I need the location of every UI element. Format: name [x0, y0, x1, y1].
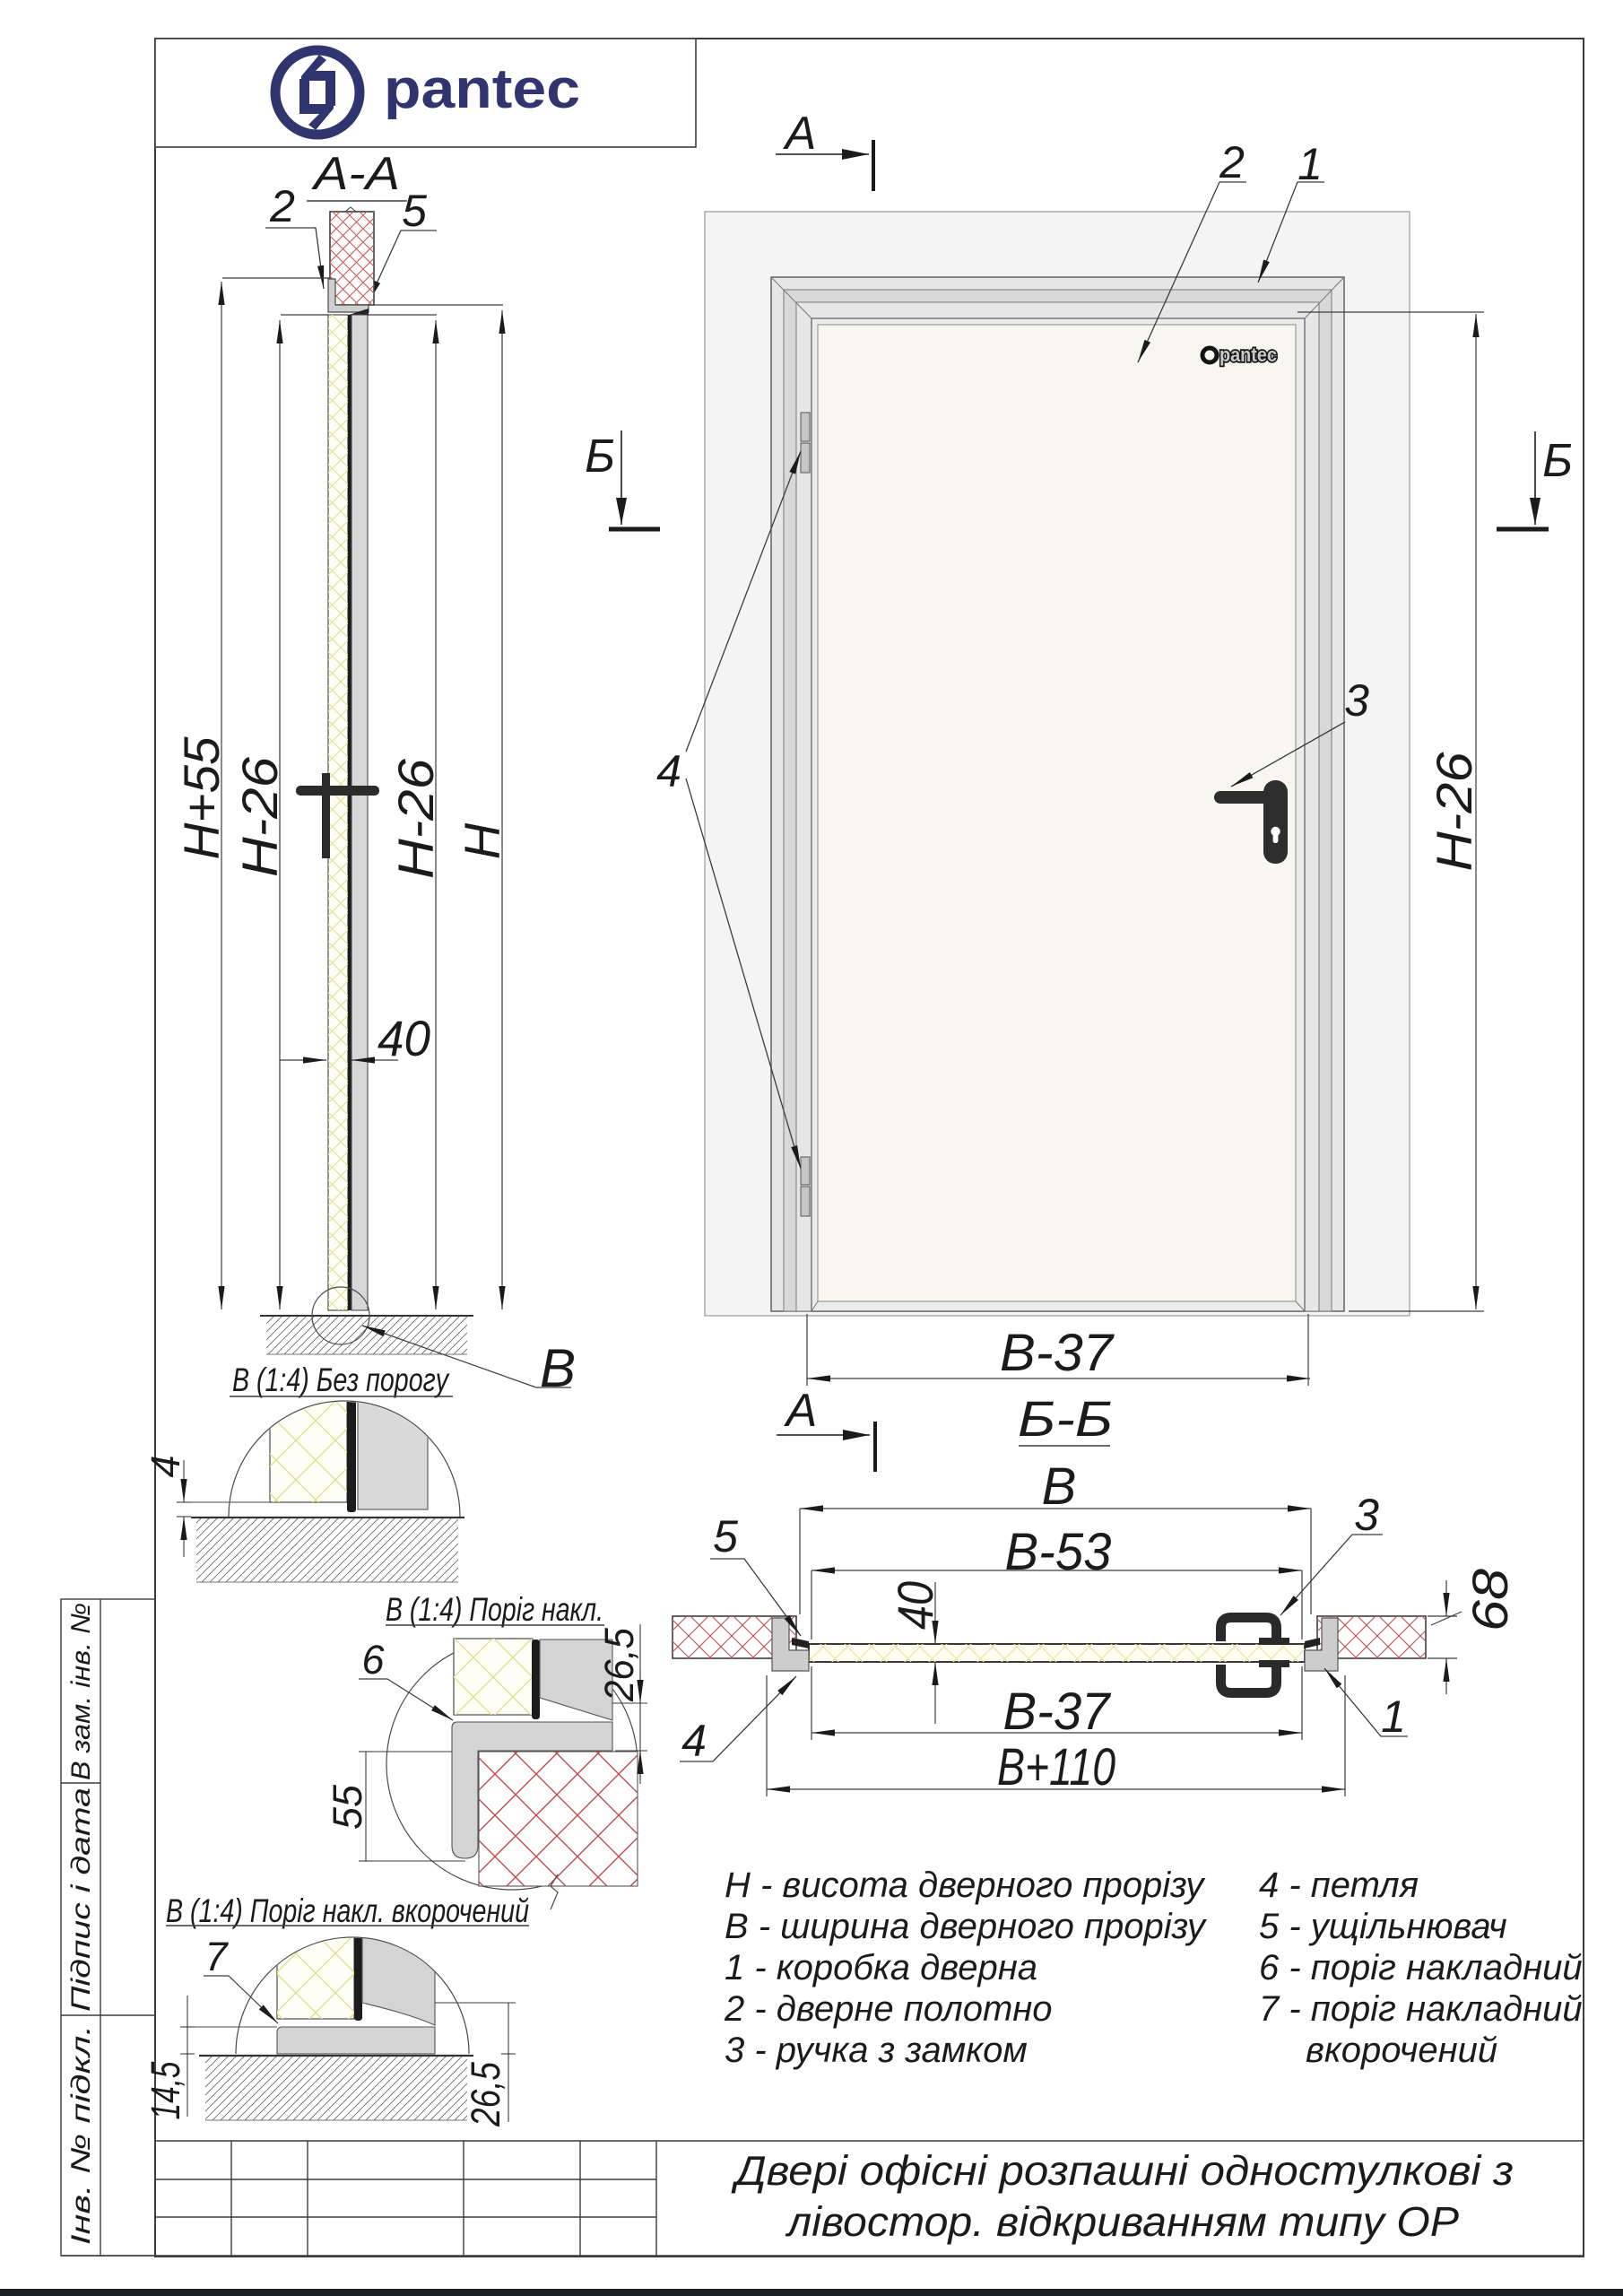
svg-text:Н: Н: [454, 822, 510, 859]
svg-text:2 - дверне полотно: 2 - дверне полотно: [724, 1989, 1053, 2029]
svg-text:4 - петля: 4 - петля: [1259, 1865, 1419, 1905]
svg-text:В (1:4) Поріг накл.: В (1:4) Поріг накл.: [386, 1591, 603, 1628]
svg-text:14,5: 14,5: [143, 2061, 188, 2120]
svg-text:Б: Б: [585, 430, 615, 483]
svg-text:В: В: [1042, 1457, 1077, 1516]
svg-text:Н - висота дверного прорізу: Н - висота дверного прорізу: [725, 1865, 1206, 1905]
svg-text:55: 55: [325, 1784, 370, 1830]
svg-text:5 - ущільнювач: 5 - ущільнювач: [1259, 1907, 1507, 1946]
svg-text:7 - поріг накладний: 7 - поріг накладний: [1259, 1989, 1583, 2029]
svg-text:В-37: В-37: [1000, 1324, 1115, 1382]
svg-text:Двері офісні розпашні одностул: Двері офісні розпашні одностулкові з: [731, 2147, 1514, 2194]
svg-text:pantec: pantec: [1219, 344, 1277, 366]
svg-text:5: 5: [713, 1511, 738, 1561]
svg-text:В (1:4) Поріг накл. вкорочений: В (1:4) Поріг накл. вкорочений: [166, 1892, 529, 1929]
svg-text:5: 5: [402, 186, 427, 236]
svg-text:6 - поріг накладний: 6 - поріг накладний: [1259, 1948, 1583, 1987]
svg-text:В - ширина дверного прорізу: В - ширина дверного прорізу: [725, 1907, 1208, 1946]
svg-text:Н-26: Н-26: [387, 758, 444, 879]
svg-text:В+110: В+110: [997, 1738, 1115, 1796]
svg-text:А: А: [783, 108, 817, 160]
svg-text:40: 40: [378, 1010, 430, 1066]
svg-text:вкорочений: вкорочений: [1306, 2031, 1497, 2070]
svg-text:лівостор. відкриванням типу ОР: лівостор. відкриванням типу ОР: [785, 2198, 1459, 2245]
svg-text:В зам. інв. №: В зам. інв. №: [66, 1603, 96, 1780]
svg-text:В-37: В-37: [1003, 1683, 1113, 1741]
svg-text:1 - коробка дверна: 1 - коробка дверна: [725, 1948, 1037, 1987]
svg-text:Н-26: Н-26: [231, 756, 288, 877]
svg-text:Інв. № підкл.: Інв. № підкл.: [66, 2025, 96, 2245]
svg-text:В: В: [540, 1338, 576, 1398]
svg-text:26,5: 26,5: [463, 2061, 508, 2127]
svg-text:Б-Б: Б-Б: [1018, 1390, 1113, 1447]
svg-text:26,5: 26,5: [596, 1627, 642, 1702]
svg-text:2: 2: [1219, 137, 1245, 187]
svg-text:А: А: [784, 1385, 818, 1437]
svg-text:3 - ручка з замком: 3 - ручка з замком: [725, 2031, 1028, 2070]
svg-text:3: 3: [1344, 675, 1369, 726]
svg-text:6: 6: [361, 1637, 385, 1683]
svg-text:40: 40: [887, 1581, 943, 1630]
svg-text:4: 4: [681, 1716, 707, 1766]
svg-text:А-А: А-А: [311, 148, 400, 200]
svg-text:1: 1: [1381, 1692, 1406, 1742]
svg-text:Н-26: Н-26: [1426, 752, 1482, 872]
svg-text:7: 7: [204, 1934, 229, 1979]
svg-text:3: 3: [1354, 1490, 1379, 1540]
svg-text:4: 4: [656, 746, 681, 796]
svg-text:В (1:4) Без порогу: В (1:4) Без порогу: [232, 1361, 450, 1398]
svg-text:Підпис і дата: Підпис і дата: [66, 1787, 96, 2012]
svg-text:В-53: В-53: [1005, 1523, 1112, 1581]
svg-text:Н+55: Н+55: [173, 736, 230, 860]
svg-text:68: 68: [1462, 1569, 1518, 1631]
svg-text:pantec: pantec: [384, 58, 580, 120]
svg-text:2: 2: [269, 181, 295, 231]
svg-text:4: 4: [143, 1455, 188, 1477]
svg-text:Б: Б: [1542, 435, 1573, 487]
